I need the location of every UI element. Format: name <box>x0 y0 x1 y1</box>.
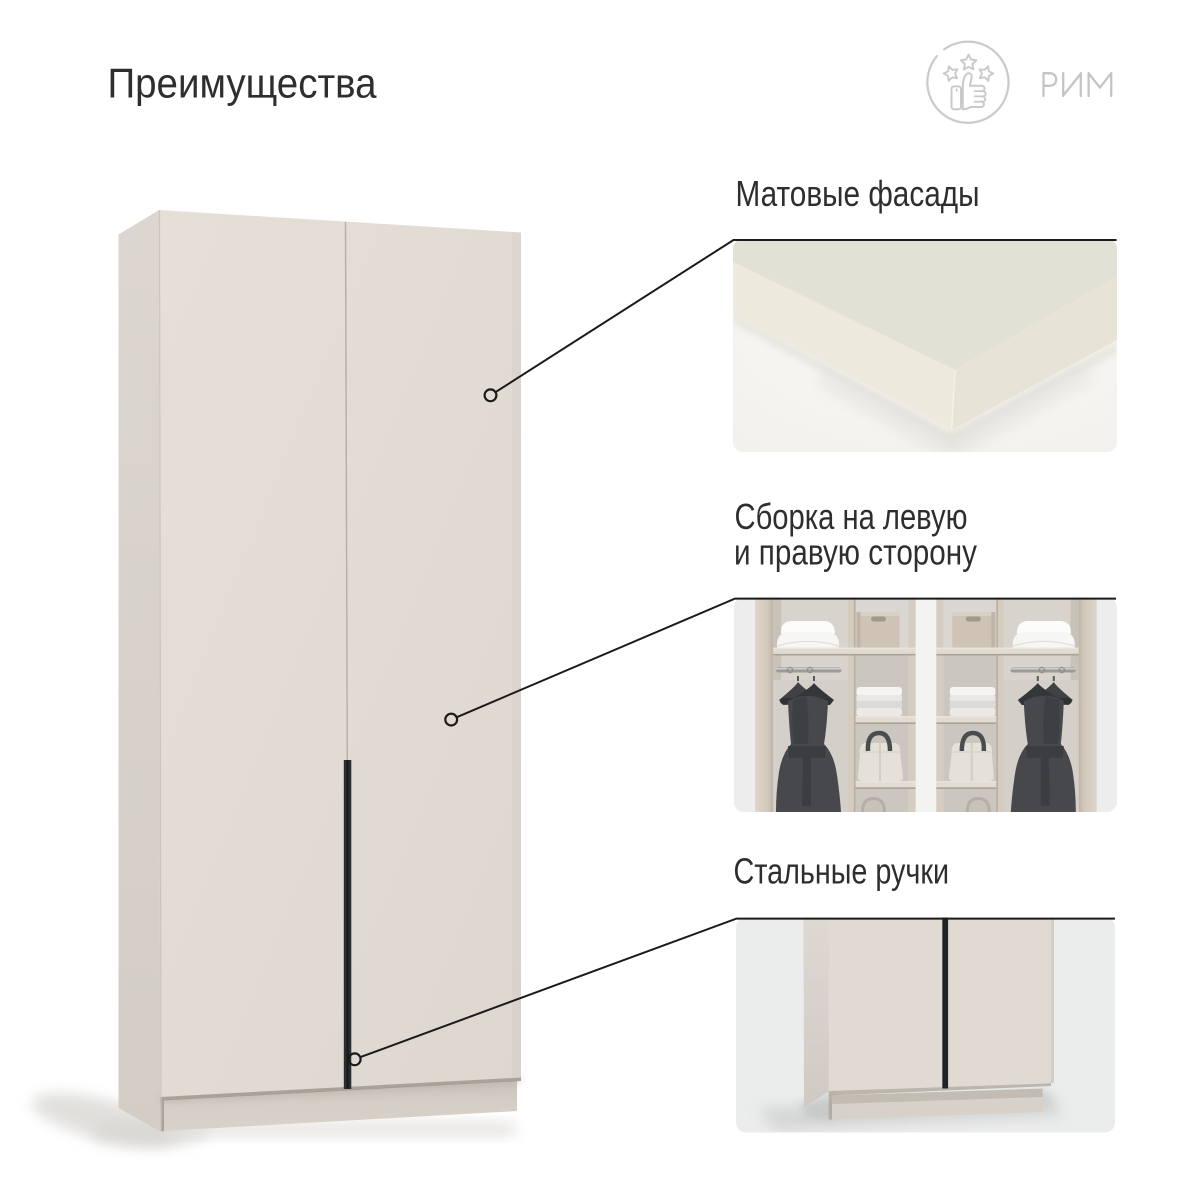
svg-text:Сборка на левую: Сборка на левую <box>735 497 968 537</box>
svg-text:и правую сторону: и правую сторону <box>734 533 977 573</box>
svg-text:Преимущества: Преимущества <box>108 60 378 107</box>
svg-text:Матовые фасады: Матовые фасады <box>736 174 980 214</box>
svg-text:Стальные ручки: Стальные ручки <box>734 851 950 891</box>
